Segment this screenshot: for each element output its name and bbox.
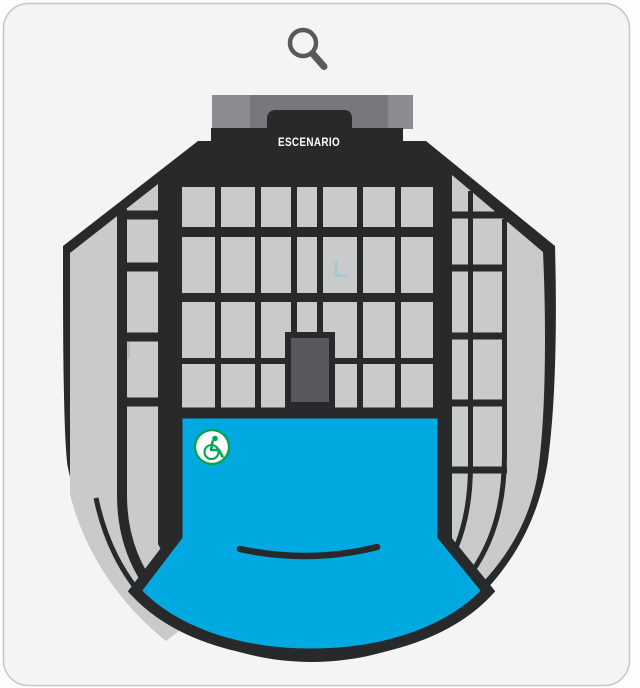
seat-block[interactable] — [297, 187, 317, 227]
seat-block[interactable] — [401, 187, 433, 227]
seat-block[interactable] — [363, 302, 395, 358]
stage-bar-left — [212, 95, 250, 129]
seat-block[interactable] — [261, 187, 291, 227]
wheelchair-icon[interactable] — [195, 430, 229, 464]
section-label-i: I — [125, 337, 132, 364]
seat-block[interactable] — [182, 187, 215, 227]
seat-block[interactable] — [401, 302, 433, 358]
booth-block — [291, 338, 329, 402]
seat-block[interactable] — [182, 237, 215, 293]
seat-block[interactable] — [323, 187, 357, 227]
stage-label: ESCENARIO — [278, 137, 340, 149]
seat-block[interactable] — [363, 364, 395, 408]
seat-block[interactable] — [221, 364, 255, 408]
seat-block[interactable] — [363, 237, 395, 293]
seat-block[interactable] — [221, 187, 255, 227]
stage-bar-right — [388, 95, 413, 129]
floor-section[interactable] — [135, 413, 488, 654]
seat-block[interactable] — [297, 237, 317, 293]
seat-block[interactable] — [401, 237, 433, 293]
seat-block[interactable] — [363, 187, 395, 227]
seat-block[interactable] — [261, 237, 291, 293]
seatmap-card: ESCENARIO I — [0, 0, 640, 688]
seat-block[interactable] — [182, 364, 215, 408]
seat-block[interactable] — [401, 364, 433, 408]
seat-block[interactable] — [221, 302, 255, 358]
seat-block[interactable] — [221, 237, 255, 293]
seat-block[interactable] — [182, 302, 215, 358]
section-label-l: L — [333, 256, 347, 282]
sound-booth — [285, 332, 335, 408]
